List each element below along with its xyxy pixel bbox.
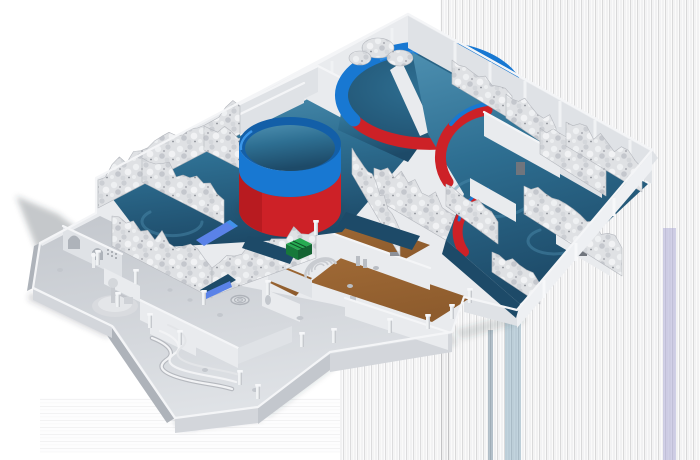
- lamp-post: [92, 256, 95, 268]
- cylindrical-tank: [236, 117, 344, 237]
- doorway: [516, 162, 525, 175]
- machine-head: [108, 278, 118, 288]
- streak-teal-thin: [488, 330, 493, 460]
- streak-lavender-band: [663, 228, 676, 460]
- building-render: Aquarium exhibit building cutaway model: [0, 0, 700, 460]
- streak-teal-band: [505, 320, 521, 460]
- render-stage: Aquarium exhibit building cutaway model: [0, 0, 700, 460]
- tank-water-surface: [245, 125, 335, 171]
- floor-medallion: [231, 296, 249, 305]
